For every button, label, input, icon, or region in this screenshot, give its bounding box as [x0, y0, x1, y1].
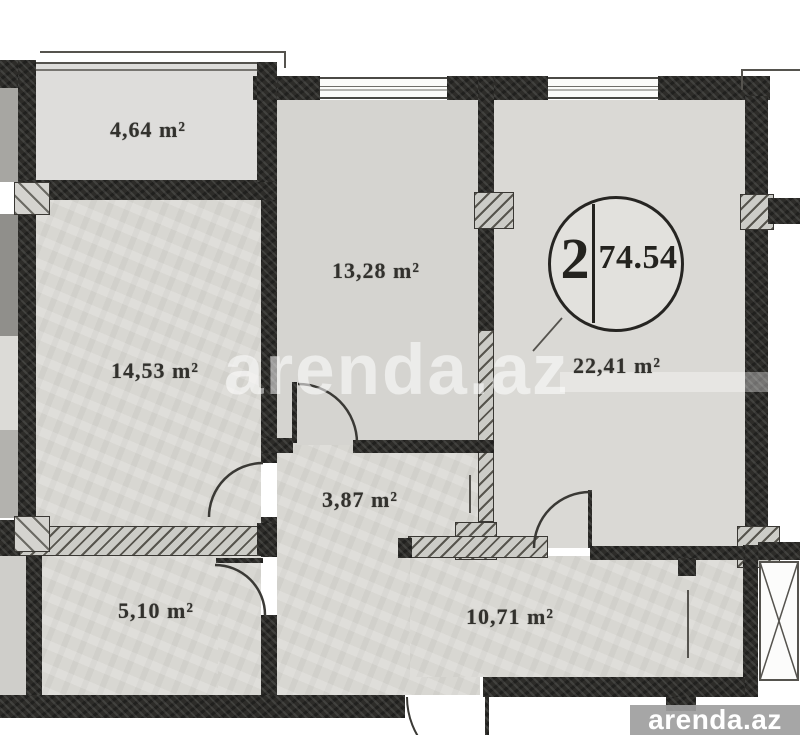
wall-h6-cap: [398, 538, 412, 558]
neighbor-partial-4: [0, 430, 18, 518]
wall-13-28-bottom-stub: [261, 438, 293, 453]
wall-h-balcony-bottom: [18, 180, 277, 200]
elevator-shaft: [760, 562, 798, 680]
neighbor-partial-1: [0, 88, 18, 182]
elevator-cross-2: [760, 562, 798, 680]
wall-stub-right-bottom: [758, 542, 800, 560]
watermark-center: arenda.az: [224, 330, 570, 411]
elevator-cross-1: [760, 562, 798, 680]
area-label-13-28: 13,28 m²: [332, 258, 420, 284]
wall-22-41-bottom: [590, 546, 745, 560]
wall-v4-right: [745, 96, 768, 548]
watermark-corner: arenda.az: [630, 705, 800, 735]
wall-h5-cap-right: [257, 523, 277, 556]
wall-stub-vestibule-top: [678, 558, 696, 576]
door-arc-entrance: [407, 697, 483, 735]
column-v3-top: [474, 192, 514, 229]
area-label-10-71: 10,71 m²: [466, 604, 554, 630]
door-panel-22-41: [588, 490, 592, 548]
wall-left-lower: [26, 553, 42, 700]
column-left-bottom: [14, 516, 50, 552]
area-label-14-53: 14,53 m²: [111, 358, 199, 384]
unit-total-area: 74.54: [597, 239, 679, 277]
wall-left-outer: [18, 60, 36, 553]
area-label-4-64: 4,64 m²: [110, 117, 186, 143]
area-label-22-41: 22,41 m²: [573, 353, 661, 379]
wall-left-corner: [0, 60, 18, 88]
wall-h6-hatched: [408, 536, 548, 558]
wall-v4-lower: [743, 545, 758, 697]
wall-v3-top: [478, 76, 494, 194]
window-13-28: [320, 77, 447, 99]
wall-13-28-bottom: [353, 440, 494, 453]
wall-bottom-right: [483, 677, 745, 697]
wall-balcony-right: [257, 62, 277, 182]
window-22-41: [548, 77, 658, 99]
floor-plan: 4,64 m² 13,28 m² 14,53 m² 22,41 m² 3,87 …: [0, 0, 800, 735]
neighbor-partial-3: [0, 336, 18, 430]
neighbor-partial-2: [0, 214, 18, 336]
door-panel-entrance: [485, 697, 489, 735]
unit-info-badge: 2 74.54: [548, 196, 684, 332]
wall-v2-lower: [261, 615, 277, 697]
area-label-5-10: 5,10 m²: [118, 598, 194, 624]
room-5-10: [42, 556, 218, 695]
column-left-top: [14, 182, 50, 215]
area-label-3-87: 3,87 m²: [322, 487, 398, 513]
wall-bottom-left: [0, 695, 405, 718]
unit-number: 2: [557, 225, 593, 292]
wall-top-segment-2: [447, 76, 548, 100]
badge-divider: [592, 204, 595, 323]
wall-v3-mid: [478, 229, 494, 330]
neighbor-partial-5: [0, 553, 26, 695]
wall-stub-right-top: [768, 198, 800, 224]
door-panel-5-10: [216, 558, 263, 563]
